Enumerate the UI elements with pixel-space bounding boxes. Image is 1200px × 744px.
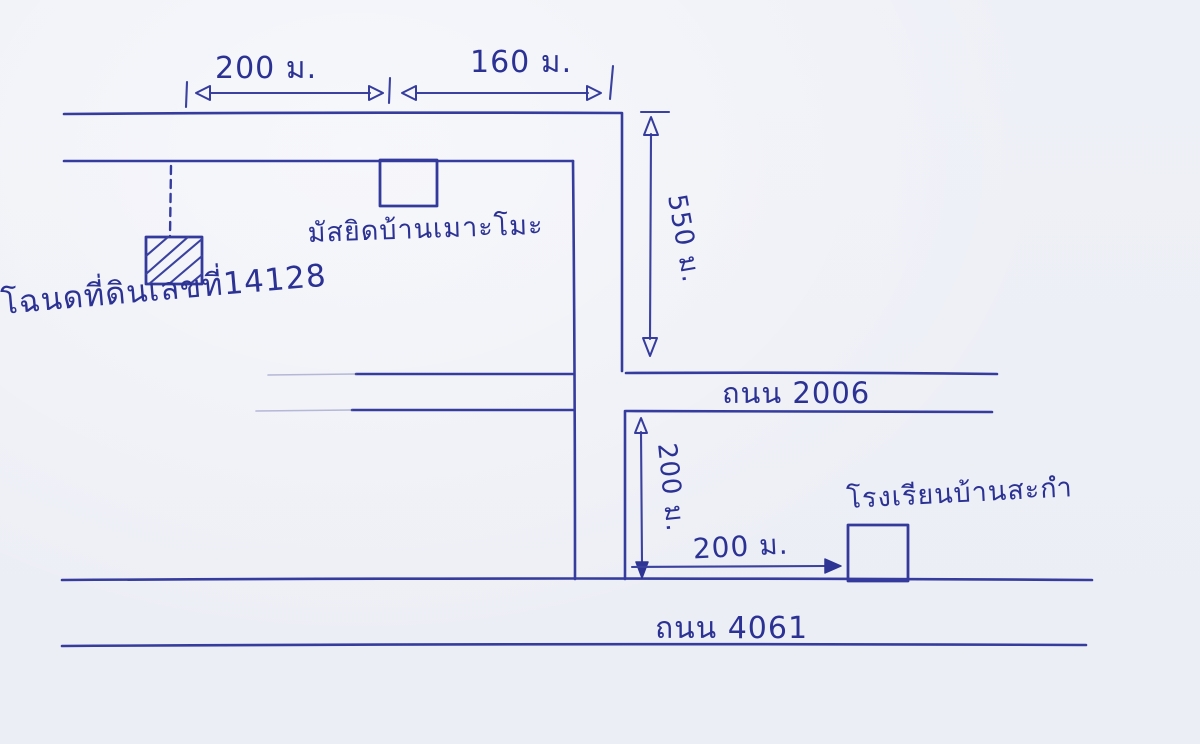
scanned-sketch-map: 200 ม. 160 ม. 550 ม. 200 ม. 200 ม. ถนน 2… [0, 0, 1200, 744]
label-road-4061: ถนน 4061 [655, 611, 808, 646]
label-road-2006: ถนน 2006 [722, 376, 870, 410]
arrowhead-down-icon [643, 338, 657, 356]
arrowhead-up-icon [635, 418, 647, 433]
road-2006-lower-line-left-faint [256, 410, 352, 411]
sketch-map-canvas: 200 ม. 160 ม. 550 ม. 200 ม. 200 ม. ถนน 2… [0, 0, 1200, 744]
arrowhead-up-icon [644, 117, 658, 135]
arrowhead-right-icon [587, 86, 601, 100]
measure-tick-right [610, 66, 613, 99]
road-2006-upper-line-right [626, 373, 997, 374]
hatch-line [146, 237, 168, 256]
measure-arrow-200v-shaft [641, 432, 642, 563]
measure-arrow-200-school-shaft [632, 566, 826, 567]
measure-arrow-550-shaft [650, 134, 651, 339]
label-school: โรงเรียนบ้านสะกำ [846, 472, 1074, 515]
label-distance-200-school: 200 ม. [692, 527, 789, 565]
arrowhead-right-icon [369, 86, 383, 100]
school-building-box [848, 525, 908, 581]
measure-tick-left [186, 82, 187, 107]
arrowhead-right-icon [825, 559, 841, 573]
label-distance-200-top: 200 ม. [215, 51, 317, 86]
vertical-road-left-line [573, 161, 575, 579]
label-land-deed: โฉนดที่ดินเลขที่14128 [0, 254, 328, 322]
road-2006-upper-line-left-faint [268, 374, 356, 375]
road-4061-lower-line [62, 644, 1086, 646]
arrowhead-left-icon [402, 86, 416, 100]
arrowhead-down-icon [636, 562, 648, 578]
top-road-lower-line [64, 161, 573, 162]
label-distance-550: 550 ม. [661, 192, 706, 285]
road-2006-lower-line-right [626, 411, 992, 412]
label-mosque: มัสยิดบ้านเมาะโมะ [307, 210, 544, 249]
label-distance-200-vertical: 200 ม. [651, 442, 690, 534]
measure-tick-middle [389, 78, 390, 103]
road-4061-upper-line [62, 579, 1092, 581]
label-distance-160-top: 160 ม. [470, 45, 572, 80]
arrowhead-left-icon [196, 86, 210, 100]
land-parcel-leader-dashed-line [170, 166, 171, 236]
mosque-building-box [380, 160, 437, 206]
top-road-upper-line [64, 113, 622, 114]
